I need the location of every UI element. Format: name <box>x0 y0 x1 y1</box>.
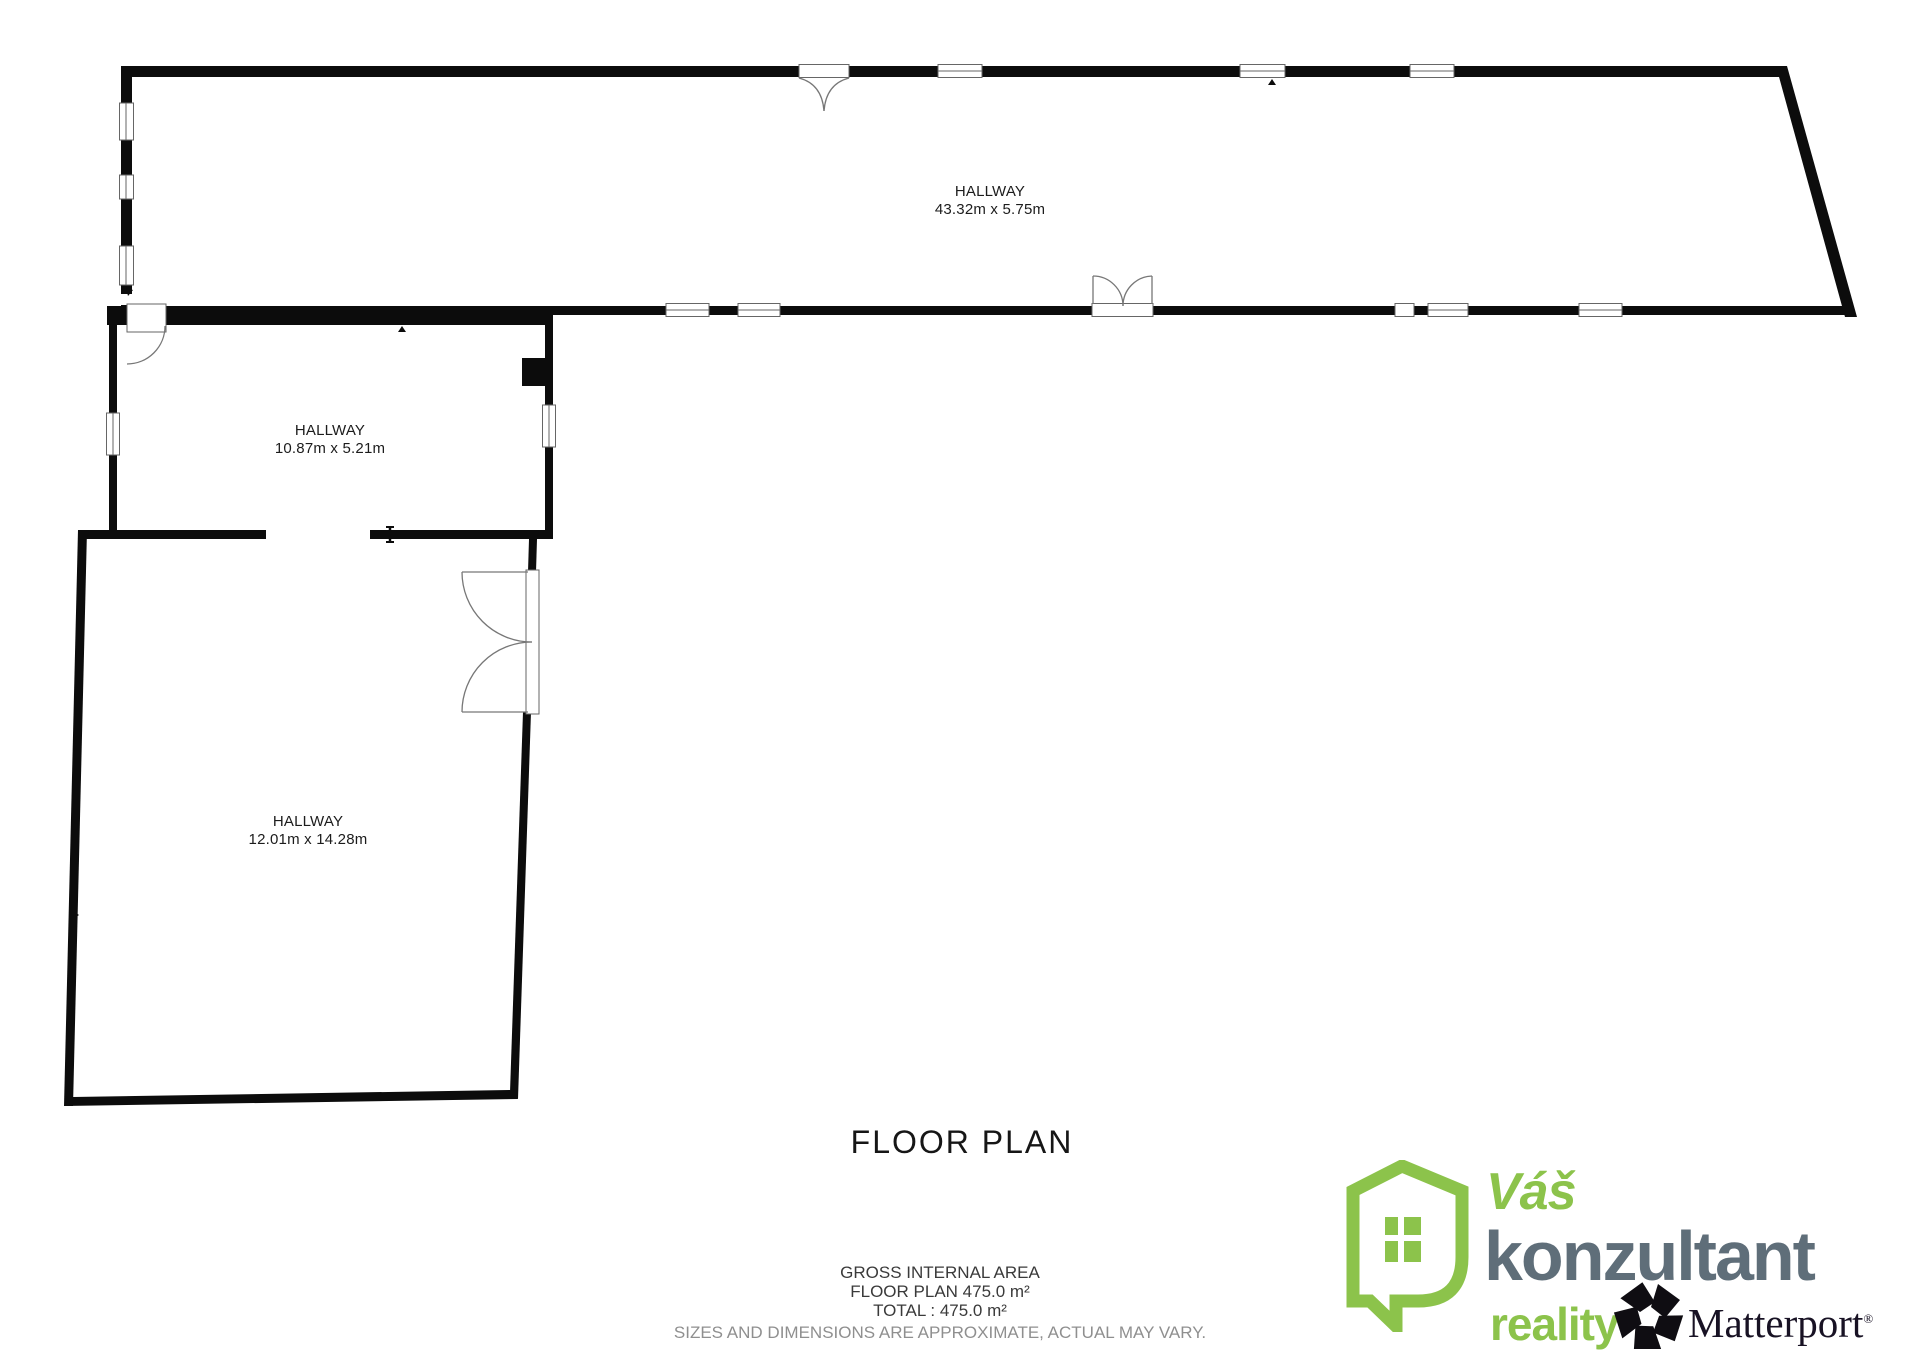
bottom-room-double-door <box>462 570 539 714</box>
door-swing-arc <box>462 642 532 712</box>
door-opening <box>799 65 849 78</box>
wall-right-lower <box>510 712 531 1099</box>
room-name: HALLWAY <box>249 813 368 831</box>
room-label-middle-hallway: HALLWAY 10.87m x 5.21m <box>275 422 385 458</box>
wall-pillar <box>522 358 553 386</box>
wall-right-slanted <box>1776 66 1857 317</box>
wall-left-slanted <box>64 530 87 1106</box>
opening-tick-marks <box>73 79 1276 919</box>
door-swing-arc <box>824 78 849 111</box>
room-name: HALLWAY <box>935 183 1045 201</box>
room-dimensions: 10.87m x 5.21m <box>275 440 385 458</box>
wall-divider-thick <box>107 306 553 325</box>
tick-icon <box>398 326 406 332</box>
room-name: HALLWAY <box>275 422 385 440</box>
area-summary: GROSS INTERNAL AREA FLOOR PLAN 475.0 m² … <box>674 1263 1206 1342</box>
tick-icon <box>1268 79 1276 85</box>
floor-plan-area-value: FLOOR PLAN 475.0 m² <box>674 1282 1206 1301</box>
divider-door <box>127 304 166 364</box>
total-area-value: TOTAL : 475.0 m² <box>674 1301 1206 1320</box>
door-swing-arc <box>799 78 824 111</box>
bottom-wall-double-door <box>1092 276 1153 317</box>
floor-plan-page: HALLWAY 43.32m x 5.75m HALLWAY 10.87m x … <box>0 0 1920 1358</box>
door-swing-arc <box>1093 276 1123 306</box>
wall-bottom-left-seg <box>78 530 266 539</box>
page-title: FLOOR PLAN <box>851 1124 1074 1161</box>
room-label-top-hallway: HALLWAY 43.32m x 5.75m <box>935 183 1045 219</box>
wall-bottom-right-seg <box>370 530 553 539</box>
door-swing-arc <box>462 572 532 642</box>
gross-internal-area-label: GROSS INTERNAL AREA <box>674 1263 1206 1282</box>
door-opening <box>127 304 166 332</box>
wall-bottom-slanted <box>64 1090 518 1106</box>
door-swing-arc <box>1123 276 1152 306</box>
disclaimer-text: SIZES AND DIMENSIONS ARE APPROXIMATE, AC… <box>674 1323 1206 1342</box>
room-dimensions: 43.32m x 5.75m <box>935 201 1045 219</box>
wall-gap <box>120 294 133 305</box>
room-label-bottom-hallway: HALLWAY 12.01m x 14.28m <box>249 813 368 849</box>
wall-right-upper <box>528 539 537 572</box>
top-wall-double-door <box>799 65 849 112</box>
window-icon <box>1395 304 1414 317</box>
room-dimensions: 12.01m x 14.28m <box>249 831 368 849</box>
